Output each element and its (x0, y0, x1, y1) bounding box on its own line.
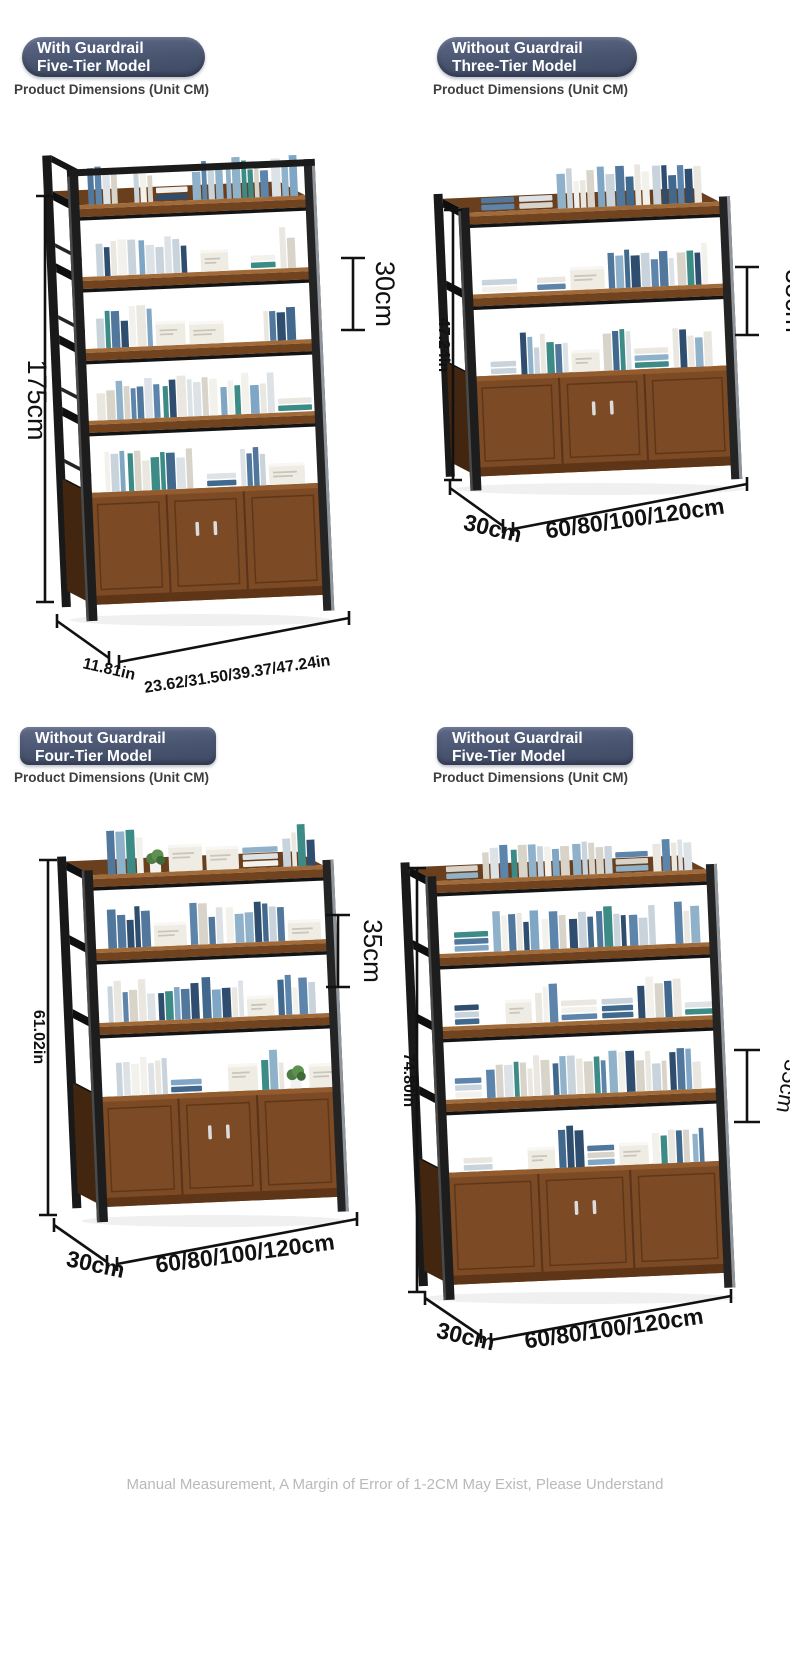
model-badge-3-line1: Without Guardrail (35, 730, 206, 748)
height-dimension-label: 47.24in (435, 318, 452, 372)
height-dimension-label: 74.80in (400, 1053, 417, 1107)
bookshelf-illustration-3: 61.02in35cm30cm60/80/100/120cm (0, 815, 395, 1293)
depth-dimension-label: 30cm (434, 1317, 497, 1356)
subtitle-1: Product Dimensions (Unit CM) (14, 82, 209, 97)
model-badge-1-line1: With Guardrail (37, 40, 195, 58)
model-badge-4-line1: Without Guardrail (452, 730, 623, 748)
model-badge-2-line2: Three-Tier Model (452, 58, 627, 76)
bookshelf-drawing (56, 821, 349, 1223)
subtitle-4: Product Dimensions (Unit CM) (433, 770, 628, 785)
bookshelf-drawing (42, 150, 334, 622)
model-badge-1: With Guardrail Five-Tier Model (22, 37, 205, 77)
bookshelf-illustration-1: 175cm30cm11.81in23.62/31.50/39.37/47.24i… (0, 150, 395, 715)
bookshelf-illustration-4: 74.80in35cm30cm60/80/100/120cm (395, 835, 790, 1365)
model-badge-4: Without Guardrail Five-Tier Model (437, 727, 633, 765)
product-dimension-sheet: With Guardrail Five-Tier Model Product D… (0, 0, 790, 1666)
width-dimension-label: 23.62/31.50/39.37/47.24in (143, 652, 331, 697)
height-dimension-label: 175cm (22, 359, 52, 440)
model-badge-1-line2: Five-Tier Model (37, 58, 195, 76)
tier-gap-dimension-label: 30cm (370, 261, 395, 327)
tier-gap-dimension-label: 35cm (358, 919, 388, 983)
model-badge-2: Without Guardrail Three-Tier Model (437, 37, 637, 77)
width-dimension-label: 60/80/100/120cm (544, 493, 726, 544)
subtitle-3: Product Dimensions (Unit CM) (14, 770, 209, 785)
model-badge-4-line2: Five-Tier Model (452, 748, 623, 766)
bookshelf-drawing (400, 836, 735, 1302)
model-badge-3-line2: Four-Tier Model (35, 748, 206, 766)
height-dimension-label: 61.02in (30, 1010, 47, 1064)
width-dimension-label: 60/80/100/120cm (523, 1303, 705, 1354)
bookshelf-illustration-2: 47.24in35cm30cm60/80/100/120cm (395, 155, 790, 555)
subtitle-2: Product Dimensions (Unit CM) (433, 82, 628, 97)
model-badge-2-line1: Without Guardrail (452, 40, 627, 58)
tier-gap-dimension-label: 35cm (780, 269, 790, 333)
disclaimer-text: Manual Measurement, A Margin of Error of… (0, 1476, 790, 1493)
width-dimension-label: 60/80/100/120cm (154, 1228, 336, 1277)
bookshelf-drawing (433, 160, 743, 491)
model-badge-3: Without Guardrail Four-Tier Model (20, 727, 216, 765)
tier-gap-dimension-label: 35cm (771, 1058, 790, 1115)
